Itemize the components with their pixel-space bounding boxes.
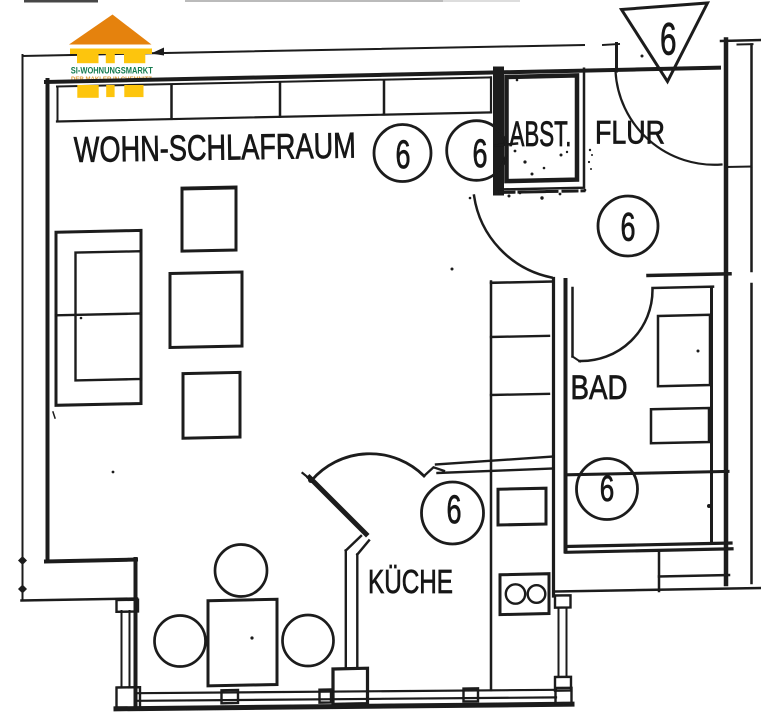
svg-text:SI-WOHNUNGSMARKT: SI-WOHNUNGSMARKT	[71, 66, 153, 76]
svg-text:KÜCHE: KÜCHE	[368, 563, 453, 600]
svg-text:6: 6	[447, 488, 462, 532]
svg-text:6: 6	[600, 468, 615, 509]
svg-text:BAD: BAD	[571, 369, 628, 407]
svg-text:WOHN-SCHLAFRAUM: WOHN-SCHLAFRAUM	[73, 125, 356, 170]
svg-text:6: 6	[660, 14, 677, 65]
svg-text:6: 6	[473, 132, 488, 176]
svg-text:6: 6	[396, 133, 411, 177]
svg-text:6: 6	[621, 206, 636, 250]
svg-text:ABST.: ABST.	[510, 115, 572, 154]
svg-text:FLUR: FLUR	[595, 115, 665, 151]
